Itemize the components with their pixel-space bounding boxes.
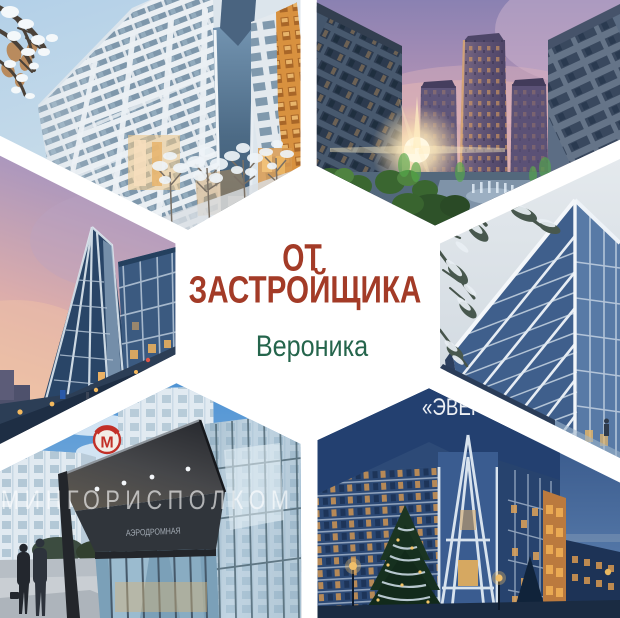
svg-text:Вероника: Вероника	[256, 329, 369, 363]
svg-text:ЗАСТРОЙЩИКА: ЗАСТРОЙЩИКА	[189, 268, 422, 311]
svg-text:М: М	[100, 435, 113, 452]
svg-text:МИНГОРИСПОЛКОМ: МИНГОРИСПОЛКОМ	[1, 486, 295, 516]
